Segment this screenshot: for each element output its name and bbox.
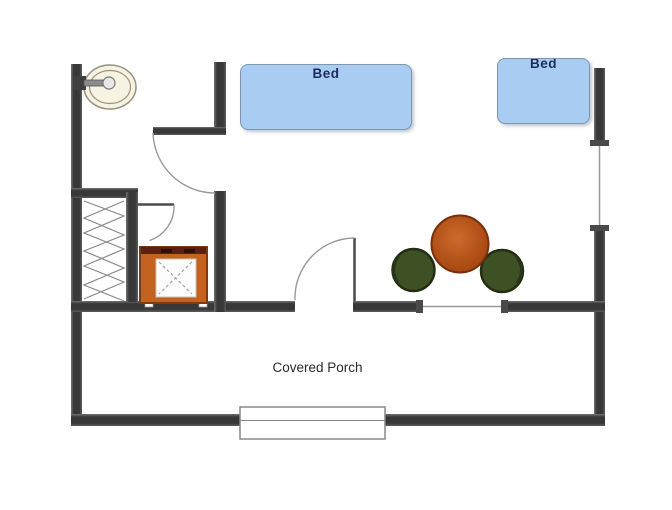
wall-house-front-right [505, 301, 605, 312]
wall-house-front-middle [353, 301, 420, 312]
chair-right-seat [481, 250, 523, 292]
bathroom-sink [73, 65, 136, 109]
bathroom-door [153, 133, 215, 193]
wall-bathroom-right [214, 62, 226, 134]
wall-porch-bottom-right [385, 414, 605, 426]
covered-porch-label: Covered Porch [240, 360, 395, 375]
floorplan-canvas: Bed Bed Covered Porch [0, 0, 672, 510]
entry-door-arc [295, 238, 355, 300]
closet-zigzag [84, 201, 124, 301]
bed-2: Bed [497, 58, 590, 124]
closet-door [138, 205, 174, 241]
wall-interior-vertical-lower [214, 191, 226, 312]
chair-left-seat [393, 249, 435, 291]
wall-right-exterior-lower [594, 230, 605, 426]
window-porch-wall [416, 300, 508, 313]
round-table [432, 216, 489, 273]
bed-1-label: Bed [241, 66, 411, 81]
porch-step [240, 407, 385, 439]
window-cap-bottom [590, 225, 609, 231]
window-right-wall [590, 140, 609, 231]
wall-porch-bottom-left [71, 414, 240, 426]
bed-2-label: Bed [498, 58, 589, 71]
closet-door-arc [150, 205, 175, 241]
window-cap-top [590, 140, 609, 146]
porch-step-outline [240, 407, 385, 439]
round-table-top [432, 216, 489, 273]
shower-unit [140, 247, 207, 303]
chair-left [393, 249, 435, 291]
window-cap-left [416, 300, 423, 313]
window-cap-right [501, 300, 508, 313]
wall-right-exterior-upper [594, 68, 605, 142]
wall-left-exterior [71, 64, 82, 426]
shower-knob-left [161, 249, 172, 253]
wall-bathroom-south [153, 127, 226, 135]
wall-closet-right [126, 192, 138, 302]
bed-1: Bed [240, 64, 412, 130]
shower-top-bar [141, 247, 206, 254]
shower-knob-right [184, 249, 195, 253]
sink-faucet-knob [103, 77, 115, 89]
entry-door [295, 238, 355, 301]
chair-right [481, 250, 523, 292]
bathroom-door-arc [153, 133, 215, 193]
